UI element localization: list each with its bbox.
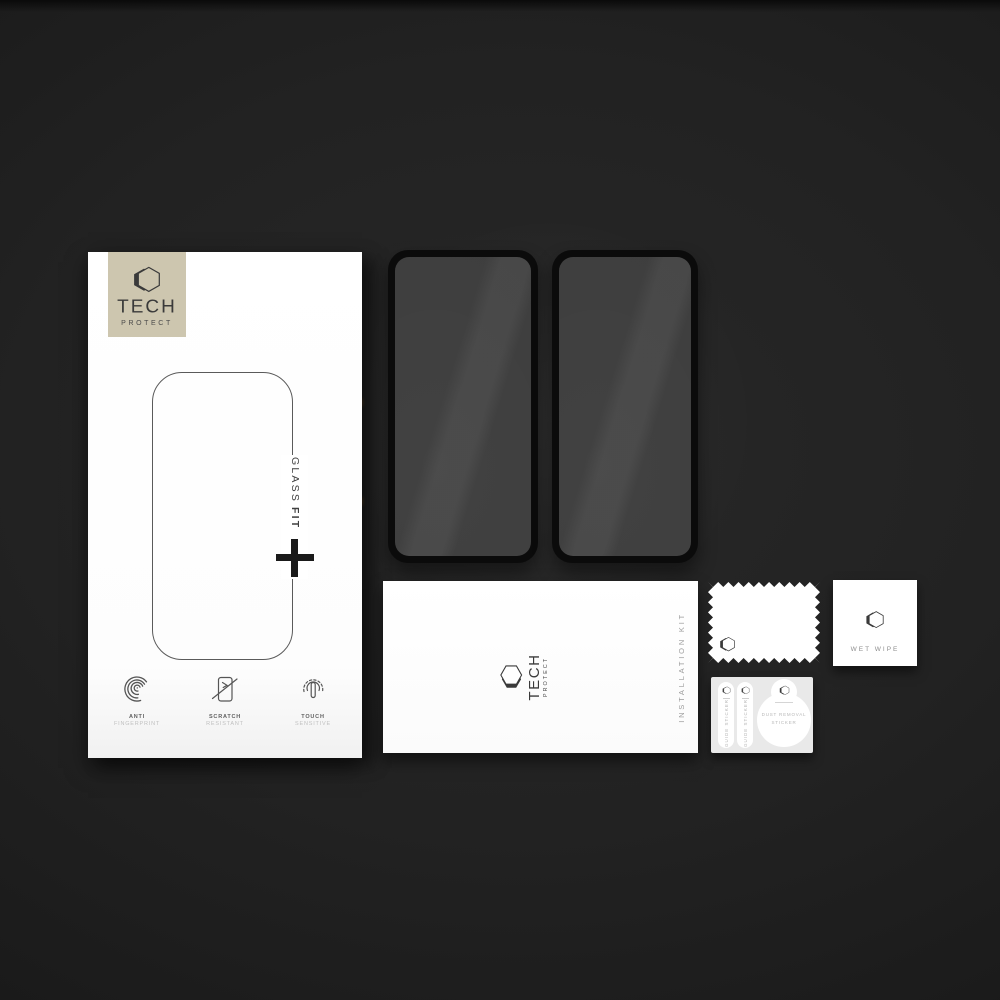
guide-sticker: GUIDE STICKER (737, 682, 753, 748)
brand-subname: PROTECT (121, 320, 173, 327)
retail-box: TECH PROTECT GLASSFIT ANTI (88, 252, 362, 758)
feature-anti-fingerprint: ANTI FINGERPRINT (105, 673, 169, 729)
fingerprint-icon (121, 673, 153, 705)
feature-label-line2: FINGERPRINT (114, 721, 160, 729)
feature-label-line1: TOUCH (301, 713, 324, 721)
touch-icon (297, 673, 329, 705)
feature-label-line1: SCRATCH (209, 713, 241, 721)
feature-touch-sensitive: TOUCH SENSITIVE (281, 673, 345, 729)
plus-icon (276, 539, 314, 577)
dust-removal-sticker-content: DUST REMOVAL STICKER (757, 677, 811, 753)
dust-sticker-label-line2: STICKER (771, 719, 796, 727)
divider (775, 702, 793, 703)
hexagon-logo-icon (719, 636, 736, 653)
product-photo-stage: TECH PROTECT GLASSFIT ANTI (0, 0, 1000, 1000)
glass-fit-area: GLASSFIT (281, 455, 308, 579)
feature-label-line1: ANTI (129, 713, 145, 721)
brand-subname: PROTECT (544, 657, 550, 697)
glass-word: GLASS (289, 457, 301, 503)
hexagon-logo-icon (741, 686, 750, 695)
brand-logo-badge: TECH PROTECT (108, 252, 186, 337)
fit-word: FIT (289, 507, 301, 529)
installation-kit-text: INSTALLATION KIT (677, 612, 686, 723)
guide-sticker-label: GUIDE STICKER (724, 699, 729, 747)
scratch-icon (209, 673, 241, 705)
installation-kit-box: TECH PROTECT INSTALLATION KIT (383, 581, 698, 753)
guide-sticker: GUIDE STICKER (718, 682, 734, 748)
hexagon-logo-icon (722, 686, 731, 695)
glass-surface (395, 257, 531, 556)
brand-name: TECH (527, 653, 542, 700)
microfiber-cloth (708, 582, 820, 663)
hexagon-logo-icon (499, 664, 525, 690)
phone-outline-drawing (152, 372, 293, 660)
screen-protector-right (552, 250, 698, 563)
top-shadow-band (0, 0, 1000, 12)
sticker-sheet: GUIDE STICKER GUIDE STICKER DUST REMOVAL… (711, 677, 813, 753)
hexagon-logo-icon (865, 610, 885, 630)
glass-surface (559, 257, 691, 556)
wet-wipe-packet: WET WIPE (833, 580, 917, 666)
installation-kit-label: INSTALLATION KIT (677, 581, 686, 753)
brand-name: TECH (117, 298, 177, 316)
hexagon-logo-icon (779, 685, 790, 696)
screen-protector-left (388, 250, 538, 563)
feature-icons-row: ANTI FINGERPRINT SCRATCH RESISTANT TOU (88, 673, 362, 729)
kit-brand-logo: TECH PROTECT (499, 653, 550, 700)
wet-wipe-label: WET WIPE (833, 646, 917, 653)
hexagon-logo-icon (132, 265, 162, 295)
glass-fit-label: GLASSFIT (289, 457, 300, 529)
feature-label-line2: SENSITIVE (295, 721, 331, 729)
feature-label-line2: RESISTANT (206, 721, 244, 729)
dust-sticker-label-line1: DUST REMOVAL (762, 711, 807, 719)
guide-sticker-label: GUIDE STICKER (743, 699, 748, 747)
feature-scratch-resistant: SCRATCH RESISTANT (193, 673, 257, 729)
